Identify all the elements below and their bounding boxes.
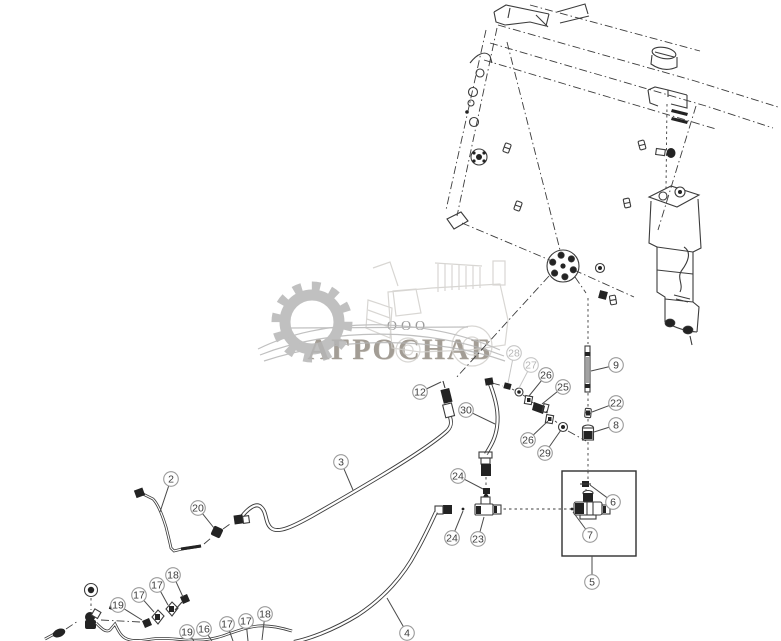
callout-leader-29 xyxy=(549,430,561,447)
hydraulic-tank-phantom xyxy=(446,5,778,379)
callout-number-24: 24 xyxy=(452,471,464,483)
parts-diagram-canvas: 2203123028272625922826292424236751917171… xyxy=(0,0,781,641)
tank-bracket-top xyxy=(494,4,589,27)
tee-fitting-23 xyxy=(475,492,501,515)
callout-16: 16 xyxy=(197,622,212,641)
callout-number-18: 18 xyxy=(167,570,179,582)
callout-leader-4 xyxy=(387,598,403,627)
tank-clips xyxy=(503,143,631,212)
callout-leader-17 xyxy=(161,591,168,605)
callout-number-17: 17 xyxy=(151,580,163,592)
tank-left-bracket xyxy=(447,53,492,229)
rod-and-fittings-stack xyxy=(583,346,594,470)
callout-24: 24 xyxy=(451,469,483,489)
callout-number-20: 20 xyxy=(192,503,204,515)
callout-number-26: 26 xyxy=(540,370,552,382)
callout-23: 23 xyxy=(471,517,486,546)
callout-5: 5 xyxy=(585,556,600,589)
pump-flange xyxy=(547,250,579,282)
bottom-tube xyxy=(45,584,292,641)
callout-20: 20 xyxy=(191,501,214,528)
callout-12: 12 xyxy=(413,382,441,399)
callout-number-25: 25 xyxy=(557,382,569,394)
callout-28: 28 xyxy=(507,346,522,383)
callout-number-19: 19 xyxy=(181,627,193,639)
callout-number-16: 16 xyxy=(198,624,210,636)
callout-number-22: 22 xyxy=(610,398,622,410)
valve-part-7 xyxy=(574,491,610,520)
watermark-graphics xyxy=(258,261,508,366)
callout-number-17: 17 xyxy=(221,619,233,631)
hose-4 xyxy=(294,505,452,641)
callout-8: 8 xyxy=(594,418,623,433)
callout-leader-3 xyxy=(344,469,353,490)
callout-number-4: 4 xyxy=(404,628,410,640)
callout-leader-20 xyxy=(203,514,214,528)
callout-number-17: 17 xyxy=(240,616,252,628)
gear-icon xyxy=(276,286,348,358)
callout-number-27: 27 xyxy=(525,360,537,372)
callout-leader-27 xyxy=(519,371,528,388)
callout-9: 9 xyxy=(591,358,623,373)
fitting-chain xyxy=(492,382,586,441)
valve-assembly xyxy=(596,186,702,345)
callout-19: 19 xyxy=(180,625,195,641)
callout-26: 26 xyxy=(521,421,548,447)
callout-7: 7 xyxy=(573,512,597,542)
callout-leader-19 xyxy=(124,609,142,620)
callout-30: 30 xyxy=(459,403,495,424)
callout-number-3: 3 xyxy=(338,457,344,469)
callout-number-8: 8 xyxy=(613,420,619,432)
callout-leader-24 xyxy=(455,511,463,531)
callout-leader-24 xyxy=(464,479,483,489)
callout-3: 3 xyxy=(334,455,353,490)
callout-number-18: 18 xyxy=(259,609,271,621)
callout-leader-12 xyxy=(427,382,441,389)
callout-number-7: 7 xyxy=(587,530,593,542)
callout-number-30: 30 xyxy=(460,405,472,417)
callout-number-19: 19 xyxy=(112,600,124,612)
tank-right-strap xyxy=(638,87,688,158)
callout-number-5: 5 xyxy=(589,577,595,589)
callout-number-23: 23 xyxy=(472,534,484,546)
parts-diagram-page: ООО АГРОСНАБ xyxy=(0,0,781,641)
callout-25: 25 xyxy=(542,380,570,404)
hose-30 xyxy=(479,377,498,501)
callout-22: 22 xyxy=(592,396,623,412)
callout-17: 17 xyxy=(239,614,254,641)
filler-cap xyxy=(651,45,677,69)
callout-4: 4 xyxy=(387,598,414,640)
callout-29: 29 xyxy=(538,430,561,460)
callout-leader-9 xyxy=(591,367,609,371)
callout-leader-22 xyxy=(592,406,609,412)
callout-18: 18 xyxy=(258,607,273,640)
callout-number-6: 6 xyxy=(610,497,616,509)
callout-number-2: 2 xyxy=(168,474,174,486)
callout-leader-18 xyxy=(262,621,264,640)
callout-number-12: 12 xyxy=(414,387,426,399)
callout-18: 18 xyxy=(166,568,183,597)
callout-24: 24 xyxy=(445,511,463,545)
callout-leader-28 xyxy=(508,360,513,383)
callout-leader-17 xyxy=(144,600,154,612)
callout-leader-26 xyxy=(529,381,541,396)
callout-leader-30 xyxy=(473,413,495,424)
callout-17: 17 xyxy=(150,578,168,605)
callout-leader-25 xyxy=(542,392,557,404)
callout-leader-18 xyxy=(176,582,183,597)
callout-leader-8 xyxy=(594,427,609,432)
callout-number-28: 28 xyxy=(508,348,520,360)
callout-number-9: 9 xyxy=(613,360,619,372)
callout-number-29: 29 xyxy=(539,448,551,460)
tube-2 xyxy=(134,488,230,551)
callout-number-17: 17 xyxy=(133,590,145,602)
callout-2: 2 xyxy=(160,472,178,512)
callout-number-26: 26 xyxy=(522,435,534,447)
callout-27: 27 xyxy=(519,358,538,388)
callout-number-24: 24 xyxy=(446,533,458,545)
callout-leader-17 xyxy=(247,628,248,641)
callout-leader-26 xyxy=(533,421,548,435)
callout-leader-2 xyxy=(160,486,169,512)
callout-leader-23 xyxy=(480,517,484,532)
